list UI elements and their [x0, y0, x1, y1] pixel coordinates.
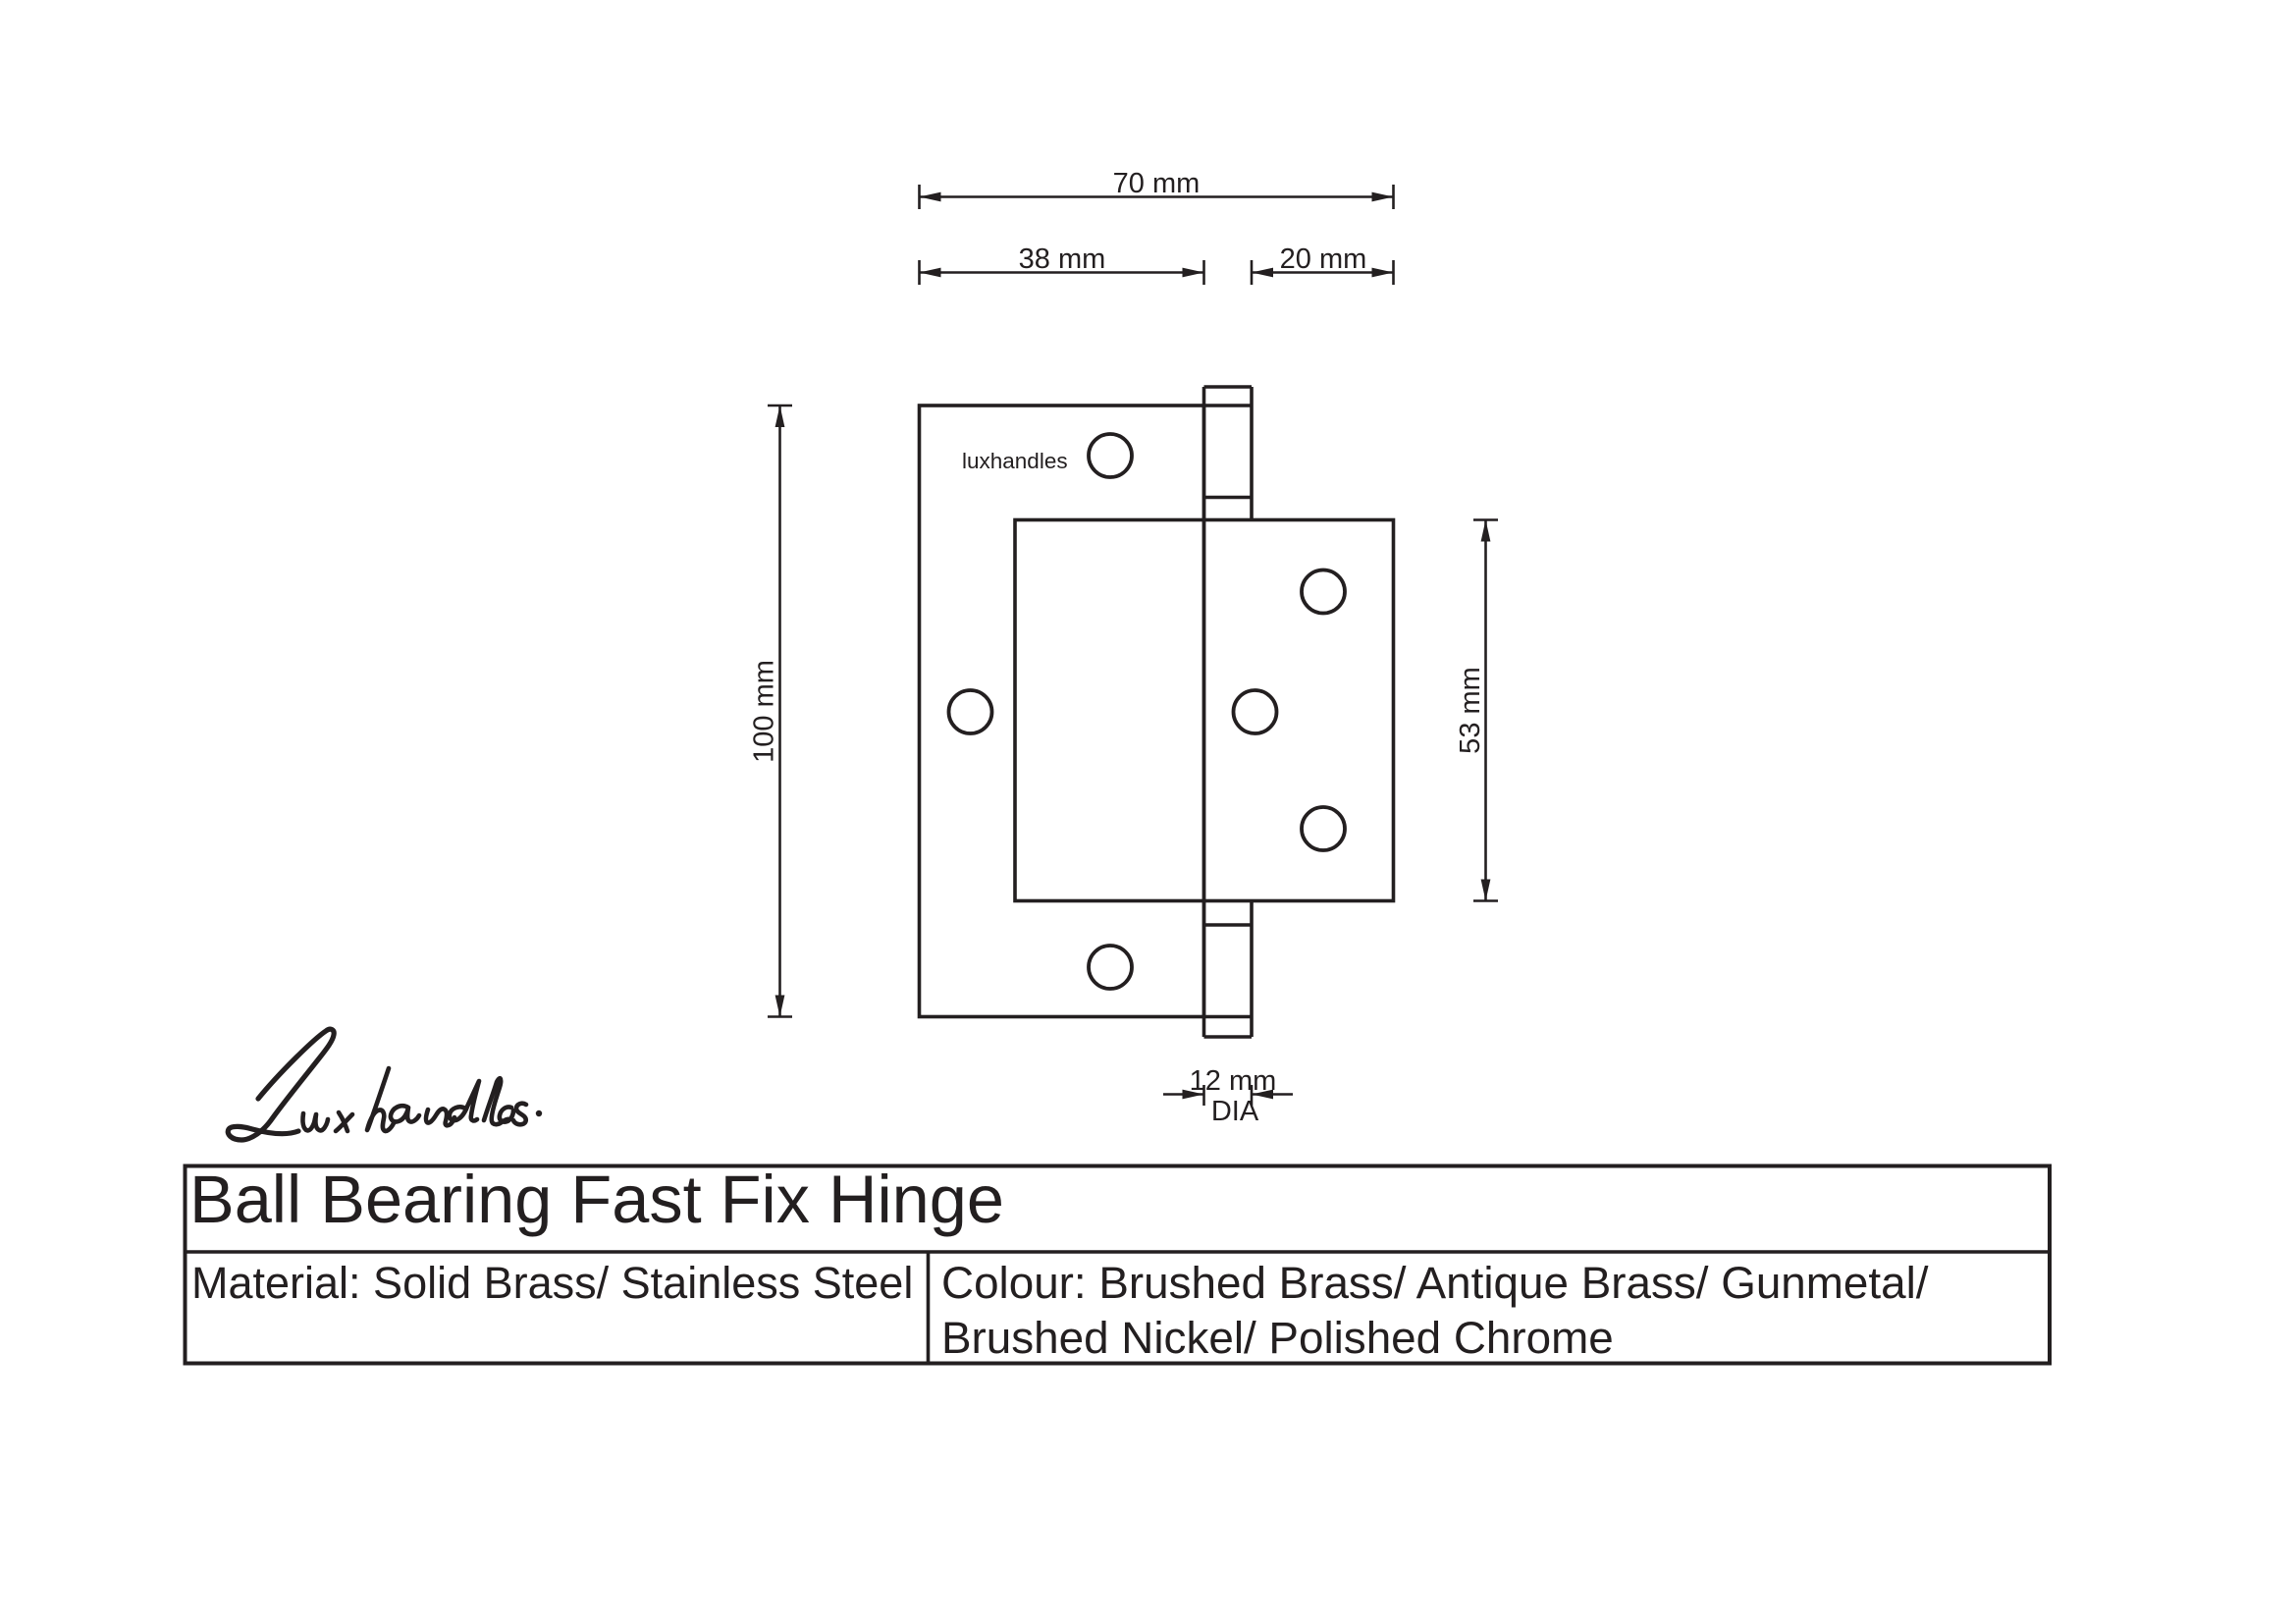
svg-text:70 mm: 70 mm — [1113, 168, 1201, 199]
svg-text:12 mm: 12 mm — [1190, 1065, 1277, 1097]
svg-text:100 mm: 100 mm — [749, 660, 780, 763]
svg-text:20 mm: 20 mm — [1280, 244, 1367, 275]
svg-text:Ball Bearing Fast Fix Hinge: Ball Bearing Fast Fix Hinge — [189, 1162, 1004, 1237]
svg-text:DIA: DIA — [1211, 1096, 1259, 1127]
svg-text:luxhandles: luxhandles — [962, 449, 1068, 473]
svg-text:Brushed Nickel/ Polished Chrom: Brushed Nickel/ Polished Chrome — [941, 1313, 1614, 1363]
svg-text:38 mm: 38 mm — [1019, 244, 1106, 275]
svg-text:53 mm: 53 mm — [1455, 667, 1486, 754]
svg-text:Material: Solid Brass/ Stainle: Material: Solid Brass/ Stainless Steel — [191, 1258, 913, 1308]
svg-text:Colour: Brushed Brass/ Antique: Colour: Brushed Brass/ Antique Brass/ Gu… — [941, 1258, 1929, 1308]
